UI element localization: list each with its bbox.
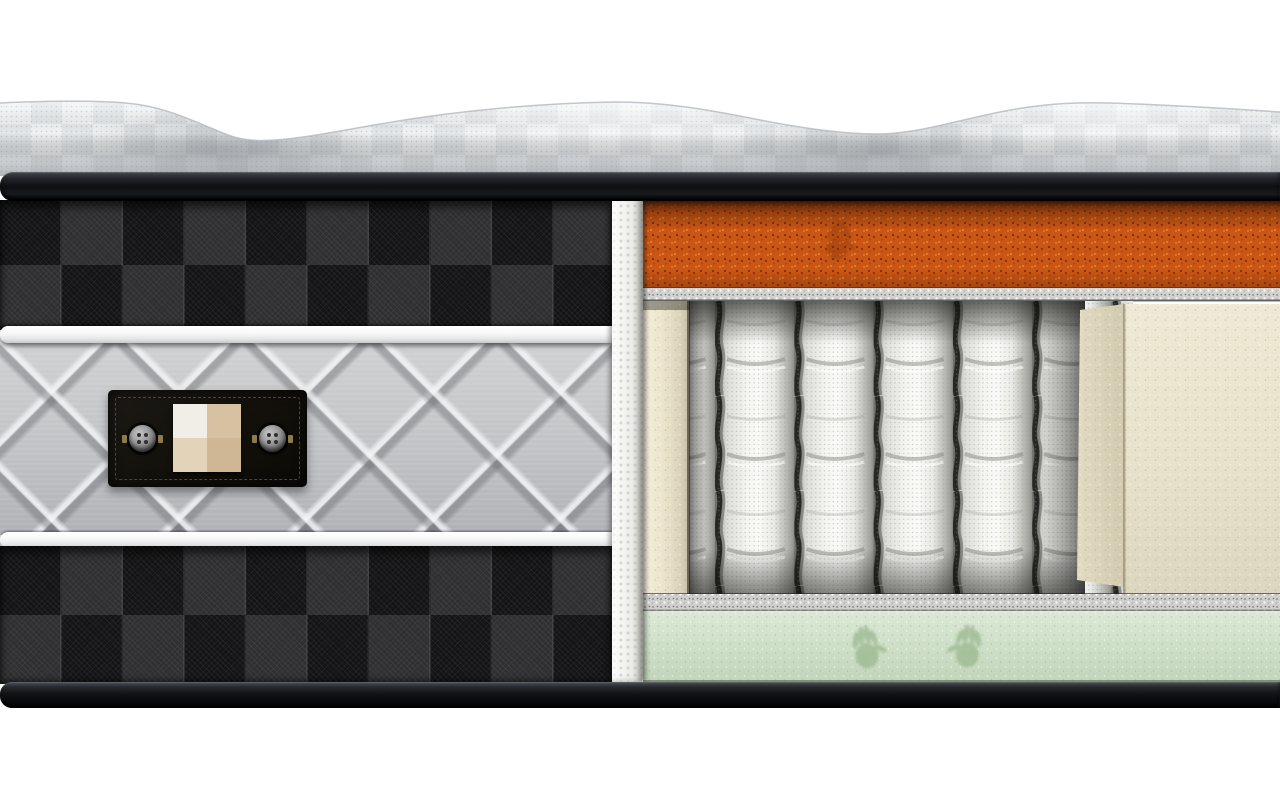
foam-rail-left — [643, 301, 690, 594]
cover-cut-edge — [612, 197, 643, 682]
felt-pad-lower — [643, 593, 1280, 611]
bottom-binding-tape — [0, 682, 1280, 708]
felt-pad-upper — [643, 287, 1280, 302]
mattress-cross-section-scene — [0, 0, 1280, 800]
label-button-icon — [129, 425, 156, 452]
brand-label-tag — [108, 390, 307, 487]
swatch-quadrant — [173, 404, 207, 438]
side-panel-plaid-lower — [0, 546, 612, 684]
orange-foam-layer — [643, 200, 1280, 289]
piping-cord-upper — [0, 326, 612, 343]
swatch-quadrant — [207, 438, 241, 472]
label-fabric-swatch — [173, 404, 241, 472]
green-foam-layer — [643, 611, 1280, 682]
pocket-springs — [643, 301, 1133, 594]
swatch-quadrant — [207, 404, 241, 438]
label-button-icon — [259, 425, 286, 452]
foam-corner-block — [1077, 304, 1280, 594]
top-binding-tape — [0, 172, 1280, 201]
side-panel-plaid-upper — [0, 200, 612, 330]
swatch-quadrant — [173, 438, 207, 472]
cutaway-layers — [643, 197, 1280, 682]
quilted-top-panel — [0, 80, 1280, 176]
